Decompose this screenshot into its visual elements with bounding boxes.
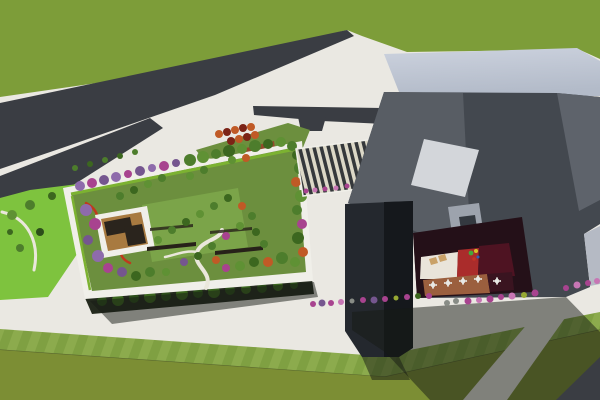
tree	[182, 218, 190, 226]
tree	[111, 172, 121, 182]
tree	[154, 236, 162, 244]
tree	[224, 194, 232, 202]
tree	[162, 268, 170, 276]
tree	[223, 128, 231, 136]
flower-bush	[404, 294, 410, 300]
tree	[238, 202, 246, 210]
tree	[196, 210, 204, 218]
tree	[297, 219, 307, 229]
tree	[7, 210, 17, 220]
tree	[248, 212, 256, 220]
tree	[194, 252, 202, 260]
flower-bush	[465, 298, 472, 305]
flower-bush	[338, 299, 344, 305]
tree	[242, 154, 250, 162]
tree	[263, 139, 273, 149]
tree	[131, 271, 141, 281]
tree	[247, 123, 255, 131]
tree	[87, 161, 93, 167]
tree	[291, 177, 301, 187]
tree	[222, 232, 230, 240]
flower-bush	[415, 293, 421, 299]
aerial-render: Aerial 3D architectural rendering: rooft…	[0, 0, 600, 400]
flower-bush	[313, 188, 318, 193]
tree	[249, 257, 259, 267]
flower-bush	[371, 297, 378, 304]
tree	[116, 192, 124, 200]
tree	[252, 228, 260, 236]
flower-bush	[532, 290, 539, 297]
tree	[292, 205, 302, 215]
flower-bush	[487, 296, 494, 303]
tree	[117, 267, 127, 277]
tree	[135, 166, 145, 176]
tree	[99, 175, 109, 185]
playground-unit	[477, 256, 480, 259]
tree	[158, 174, 166, 182]
tree	[145, 267, 155, 277]
tree	[227, 137, 235, 145]
tree	[276, 137, 286, 147]
tree	[223, 145, 235, 157]
cafe-deck-dark	[487, 272, 514, 292]
tree	[130, 186, 138, 194]
tree	[103, 263, 113, 273]
tree	[144, 180, 152, 188]
tree	[75, 181, 85, 191]
tree	[231, 126, 239, 134]
tree	[72, 165, 78, 171]
tree	[290, 257, 300, 267]
tree	[168, 226, 176, 234]
courtyard-maroon-floor	[478, 243, 515, 277]
flower-bush	[521, 292, 527, 298]
tree	[222, 264, 230, 272]
playground-unit	[472, 257, 476, 261]
tree	[211, 149, 221, 159]
flower-bush	[594, 278, 600, 284]
tree	[260, 240, 268, 248]
tree	[292, 232, 304, 244]
flower-bush	[319, 300, 326, 307]
tree	[215, 130, 223, 138]
tree	[132, 149, 138, 155]
flower-bush	[360, 297, 366, 303]
tree	[159, 161, 169, 171]
render-viewport: Aerial 3D architectural rendering: rooft…	[0, 0, 600, 400]
tree	[208, 242, 216, 250]
tree	[237, 144, 247, 154]
tree	[16, 244, 24, 252]
flower-bush	[444, 300, 450, 306]
tree	[180, 258, 188, 266]
flower-bush	[334, 186, 339, 191]
tree	[87, 178, 97, 188]
tree	[197, 151, 209, 163]
tree	[243, 133, 251, 141]
flower-bush	[345, 184, 350, 189]
tree	[186, 172, 194, 180]
tree	[25, 200, 35, 210]
flower-bush	[563, 285, 569, 291]
tree	[276, 252, 288, 264]
tree	[236, 222, 244, 230]
main-building-roof	[384, 48, 600, 96]
flower-bush	[350, 299, 355, 304]
flower-bush	[426, 293, 432, 299]
tree	[212, 256, 220, 264]
flower-bush	[453, 298, 459, 304]
flower-bush	[382, 296, 388, 302]
tree	[249, 140, 261, 152]
tree	[7, 229, 13, 235]
tree	[200, 166, 208, 174]
tree	[117, 153, 123, 159]
playground-unit	[469, 251, 474, 256]
tree	[184, 154, 196, 166]
tree	[83, 235, 93, 245]
flower-bush	[323, 187, 328, 192]
tree	[228, 156, 236, 164]
tree	[36, 228, 44, 236]
tree	[251, 131, 259, 139]
tree	[48, 192, 56, 200]
flower-bush	[394, 296, 399, 301]
tree	[102, 157, 108, 163]
tree	[263, 257, 273, 267]
flower-bush	[498, 294, 504, 300]
flower-bush	[310, 301, 316, 307]
tree	[80, 204, 92, 216]
flower-bush	[328, 300, 334, 306]
flower-bush	[574, 282, 581, 289]
tree	[148, 164, 156, 172]
flower-bush	[476, 297, 482, 303]
tree	[210, 202, 218, 210]
tree	[298, 247, 308, 257]
tree	[172, 159, 180, 167]
flower-bush	[509, 293, 516, 300]
tree	[235, 135, 243, 143]
flower-bush	[304, 189, 309, 194]
flower-bush	[585, 280, 591, 286]
tree	[89, 218, 101, 230]
playground-unit	[474, 249, 478, 253]
tree	[92, 250, 104, 262]
tree	[239, 124, 247, 132]
tree	[235, 261, 245, 271]
tree	[124, 170, 132, 178]
